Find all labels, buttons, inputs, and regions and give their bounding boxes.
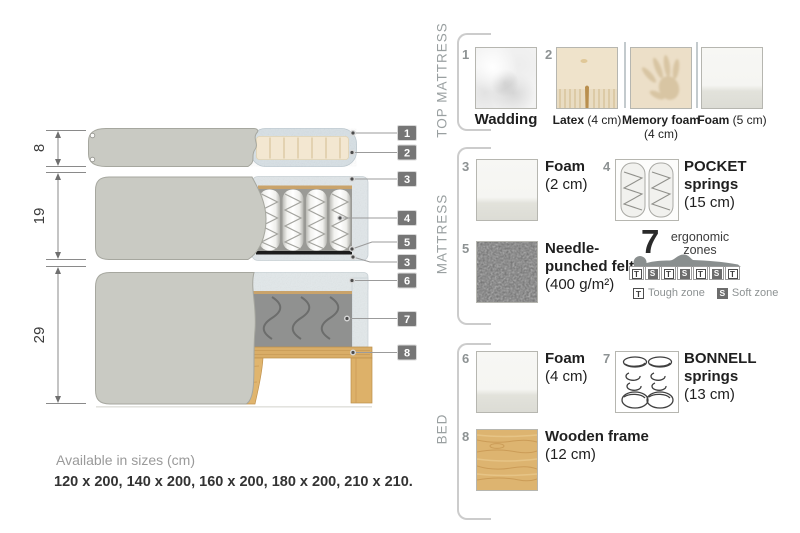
ergonomic-zones-row: T S T S T S T xyxy=(629,266,740,280)
callout-chip-4: 4 xyxy=(398,211,417,226)
zone-cell: S xyxy=(677,266,692,280)
callout-chip-7: 7 xyxy=(398,312,417,327)
foam4-thumbnail xyxy=(476,351,538,413)
callout-chip-6: 6 xyxy=(398,273,417,288)
dimension-lines xyxy=(46,131,86,404)
zones-key: T Tough zone S Soft zone xyxy=(633,287,778,299)
dim-bed-value: 29 xyxy=(31,327,48,344)
felt-thumbnail xyxy=(476,241,538,303)
svg-text:6: 6 xyxy=(404,276,410,288)
legend-divider-1 xyxy=(624,42,626,108)
svg-text:5: 5 xyxy=(404,237,410,249)
foam5-caption: Foam (5 cm) xyxy=(687,114,777,128)
tough-zone-badge: T xyxy=(633,288,644,299)
foam2-label: Foam(2 cm) xyxy=(545,158,625,194)
section-title-bed: BED xyxy=(435,414,450,445)
pocket-springs-label: POCKET springs(15 cm) xyxy=(684,158,776,212)
bonnell-springs-thumbnail xyxy=(615,351,679,413)
bed-cross-section-diagram: 8 19 29 xyxy=(0,0,430,430)
sizes-title: Available in sizes (cm) xyxy=(56,452,195,468)
felt-label: Needle-punched felt(400 g/m²) xyxy=(545,240,641,294)
svg-text:2: 2 xyxy=(404,148,410,160)
tough-zone-label: Tough zone xyxy=(648,287,705,299)
svg-text:1: 1 xyxy=(404,128,410,140)
legend-divider-2 xyxy=(696,42,698,108)
svg-text:3: 3 xyxy=(404,257,410,269)
top-mattress-layer xyxy=(89,129,357,167)
top-mattress-fabric xyxy=(89,129,258,167)
bed-base-layer xyxy=(96,273,373,408)
bonnell-springs-label: BONNELL springs(13 cm) xyxy=(684,350,779,404)
wooden-leg-right xyxy=(351,358,372,403)
zone-cell: T xyxy=(661,266,676,280)
callout-chip-1: 1 xyxy=(398,126,417,141)
sizes-values: 120 x 200, 140 x 200, 160 x 200, 180 x 2… xyxy=(54,474,413,490)
callout-chips: 1 2 3 4 5 3 6 7 8 xyxy=(398,126,417,361)
legend-num-4: 4 xyxy=(603,159,610,174)
infographic-page: 8 19 29 xyxy=(0,0,800,533)
legend-num-6: 6 xyxy=(462,351,469,366)
zone-cell: S xyxy=(709,266,724,280)
callout-chip-8: 8 xyxy=(398,345,417,360)
latex-thumbnail xyxy=(556,47,618,109)
wood-thumbnail xyxy=(476,429,538,491)
callout-chip-3: 3 xyxy=(398,172,417,187)
foam5-thumbnail xyxy=(701,47,763,109)
wadding-caption: Wadding xyxy=(461,113,551,127)
svg-text:3: 3 xyxy=(404,174,410,186)
wadding-thumbnail xyxy=(475,47,537,109)
section-title-top-mattress: TOP MATTRESS xyxy=(435,22,450,138)
svg-text:8: 8 xyxy=(404,348,410,360)
zone-cell: T xyxy=(629,266,644,280)
section-title-mattress: MATTRESS xyxy=(435,194,450,275)
sleeping-person-icon xyxy=(629,249,747,267)
legend-num-5: 5 xyxy=(462,241,469,256)
soft-zone-label: Soft zone xyxy=(732,287,778,299)
legend-num-3: 3 xyxy=(462,159,469,174)
mattress-layer xyxy=(96,177,369,261)
zone-cell: T xyxy=(725,266,740,280)
callout-chip-5: 5 xyxy=(398,235,417,250)
felt-layer xyxy=(256,251,352,255)
callout-chip-2: 2 xyxy=(398,145,417,160)
bed-fabric xyxy=(96,273,256,405)
foam2-thumbnail xyxy=(476,159,538,221)
legend-num-2: 2 xyxy=(545,47,552,62)
wooden-frame-label: Wooden frame(12 cm) xyxy=(545,428,685,464)
legend-num-8: 8 xyxy=(462,429,469,444)
zone-cell: S xyxy=(645,266,660,280)
svg-text:7: 7 xyxy=(404,314,410,326)
button-bottom xyxy=(90,157,95,162)
legend-num-1: 1 xyxy=(462,47,469,62)
dim-top-mattress-value: 8 xyxy=(31,144,48,152)
svg-text:4: 4 xyxy=(404,213,411,225)
mattress-fabric xyxy=(96,177,267,260)
zone-cell: T xyxy=(693,266,708,280)
dim-mattress-value: 19 xyxy=(31,208,48,225)
memory-foam-thumbnail xyxy=(630,47,692,109)
soft-zone-badge: S xyxy=(717,288,728,299)
foam4-label: Foam(4 cm) xyxy=(545,350,625,386)
legend-num-7: 7 xyxy=(603,351,610,366)
button-top xyxy=(90,133,95,138)
pocket-springs-thumbnail xyxy=(615,159,679,221)
callout-chip-3b: 3 xyxy=(398,255,417,270)
